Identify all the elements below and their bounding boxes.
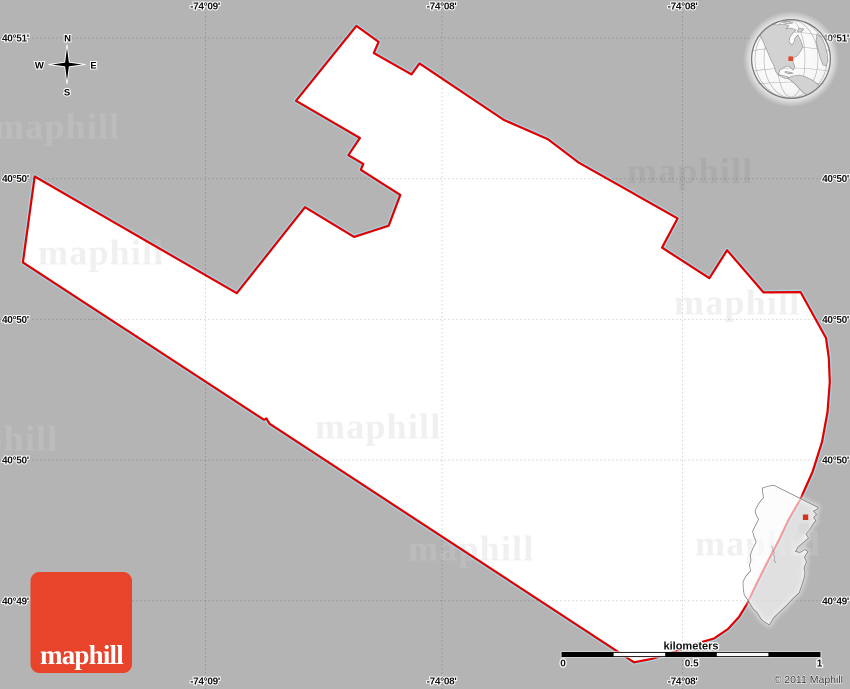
svg-text:40°49': 40°49' xyxy=(2,596,29,607)
svg-text:40°49': 40°49' xyxy=(822,596,849,607)
svg-text:E: E xyxy=(90,61,96,72)
svg-text:40°50': 40°50' xyxy=(822,174,849,185)
svg-text:W: W xyxy=(35,61,44,72)
svg-text:0: 0 xyxy=(560,659,566,670)
svg-text:40°50': 40°50' xyxy=(2,315,29,326)
svg-text:40°51': 40°51' xyxy=(2,34,29,45)
svg-text:© 2011 Maphill: © 2011 Maphill xyxy=(774,674,843,686)
svg-text:S: S xyxy=(64,88,70,99)
svg-text:40°50': 40°50' xyxy=(822,315,849,326)
svg-text:kilometers: kilometers xyxy=(663,641,718,653)
svg-text:1: 1 xyxy=(817,659,823,670)
svg-text:40°50': 40°50' xyxy=(2,174,29,185)
svg-text:maphill: maphill xyxy=(627,151,753,191)
svg-text:40°50': 40°50' xyxy=(2,456,29,467)
svg-text:-74°08': -74°08' xyxy=(427,1,457,12)
svg-text:40°50': 40°50' xyxy=(822,456,849,467)
svg-text:N: N xyxy=(64,34,71,45)
svg-text:maphill: maphill xyxy=(0,419,58,459)
svg-text:maphill: maphill xyxy=(0,107,120,147)
svg-text:-74°08': -74°08' xyxy=(427,677,457,688)
svg-text:-74°09': -74°09' xyxy=(190,1,220,12)
svg-text:0.5: 0.5 xyxy=(685,659,699,670)
svg-text:maphill: maphill xyxy=(40,640,124,670)
svg-text:-74°09': -74°09' xyxy=(190,677,220,688)
svg-text:-74°08': -74°08' xyxy=(668,677,698,688)
svg-text:-74°08': -74°08' xyxy=(668,1,698,12)
svg-text:maphill: maphill xyxy=(315,407,441,447)
